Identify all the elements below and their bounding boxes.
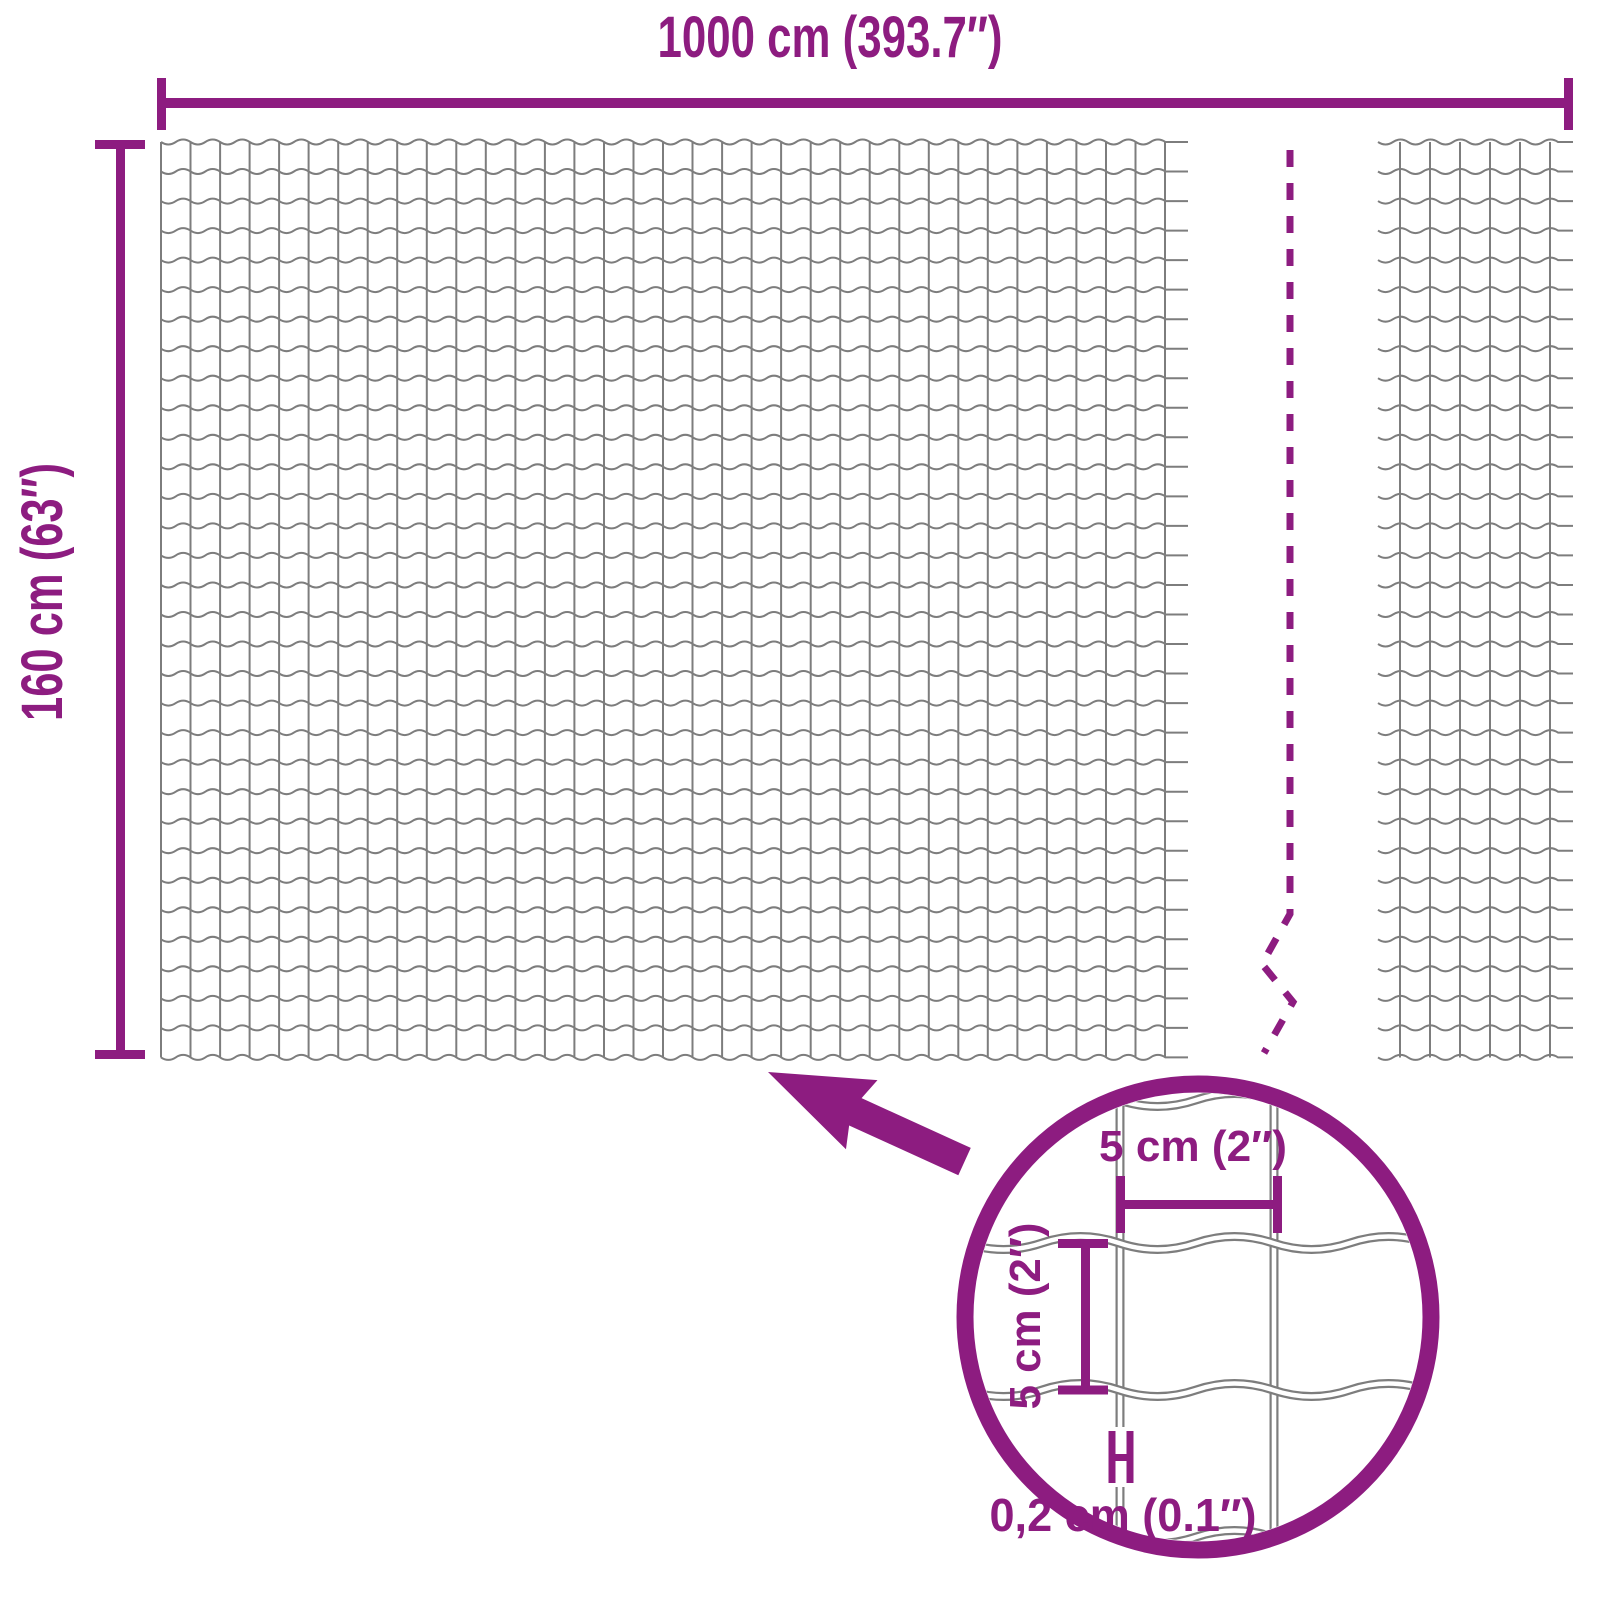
mesh-wire-horizontal — [1378, 701, 1573, 706]
mesh-wire-horizontal — [161, 996, 1188, 1001]
mesh-wire-horizontal — [1378, 317, 1573, 322]
mesh-wire-horizontal — [161, 464, 1188, 469]
mesh-wire-horizontal — [161, 494, 1188, 499]
mesh-break-dashed-line-icon — [1262, 150, 1293, 1053]
mesh-wire-horizontal — [161, 1025, 1188, 1030]
mesh-wire-horizontal — [161, 878, 1188, 883]
mesh-wire-horizontal — [161, 199, 1188, 204]
mesh-wire-horizontal — [161, 258, 1188, 263]
mesh-wire-horizontal — [161, 701, 1188, 706]
mesh-wire-horizontal — [161, 583, 1188, 588]
mesh-wire-horizontal — [161, 671, 1188, 676]
mesh-wire-horizontal — [1378, 287, 1573, 292]
mesh-wire-horizontal — [161, 228, 1188, 233]
mesh-wire-horizontal — [161, 317, 1188, 322]
mesh-wire-horizontal — [1378, 346, 1573, 351]
mesh-wire-horizontal — [161, 376, 1188, 381]
mesh-wire-horizontal — [161, 435, 1188, 440]
mesh-wire-horizontal — [1378, 1025, 1573, 1030]
width-dimension: 1000 cm (393.7″) — [159, 5, 1570, 130]
mesh-wire-horizontal — [161, 966, 1188, 971]
width-dimension-label: 1000 cm (393.7″) — [658, 5, 1003, 70]
mesh-wire-horizontal — [1378, 376, 1573, 381]
mesh-wire-horizontal — [161, 612, 1188, 617]
mesh-wire-horizontal — [1378, 435, 1573, 440]
diagram-canvas: 1000 cm (393.7″) 160 cm (63″) 5 cm (2″) … — [0, 0, 1600, 1600]
zoom-arrow-icon — [752, 1037, 980, 1196]
mesh-wire-horizontal — [1378, 258, 1573, 263]
mesh-wire-horizontal — [1378, 583, 1573, 588]
mesh-wire-horizontal — [161, 730, 1188, 735]
mesh-wire-horizontal — [161, 287, 1188, 292]
mesh-wire-horizontal — [161, 848, 1188, 853]
mesh-wire-horizontal — [1378, 140, 1573, 145]
mesh-wire-horizontal — [1378, 760, 1573, 765]
mesh-wire-horizontal — [161, 523, 1188, 528]
mesh-wire-horizontal — [1378, 612, 1573, 617]
mesh-wire-horizontal — [1378, 966, 1573, 971]
mesh-width-label: 5 cm (2″) — [1099, 1122, 1287, 1171]
mesh-wire-horizontal — [1378, 199, 1573, 204]
mesh-wire-horizontal — [1378, 996, 1573, 1001]
mesh-wire-horizontal — [1378, 494, 1573, 499]
mesh-wire-horizontal — [1378, 937, 1573, 942]
mesh-wire-horizontal — [1378, 730, 1573, 735]
mesh-wire-horizontal — [161, 760, 1188, 765]
mesh-wire-horizontal — [161, 789, 1188, 794]
height-dimension-label: 160 cm (63″) — [10, 463, 75, 721]
mesh-wire-horizontal — [1378, 848, 1573, 853]
mesh-wire-horizontal — [161, 553, 1188, 558]
mesh-wire-horizontal — [161, 819, 1188, 824]
mesh-wire-horizontal — [1378, 819, 1573, 824]
mesh-panel-continued — [1378, 140, 1573, 1060]
mesh-wire-horizontal — [161, 642, 1188, 647]
mesh-wire-horizontal — [1378, 642, 1573, 647]
mesh-height-label: 5 cm (2″) — [1001, 1223, 1050, 1410]
mesh-wire-horizontal — [1378, 1055, 1573, 1060]
mesh-wire-horizontal — [161, 907, 1188, 912]
mesh-wire-horizontal — [1378, 671, 1573, 676]
mesh-wire-horizontal — [1378, 228, 1573, 233]
mesh-wire-horizontal — [161, 169, 1188, 174]
mesh-wire-horizontal — [1378, 789, 1573, 794]
product-dimension-diagram: 1000 cm (393.7″) 160 cm (63″) 5 cm (2″) … — [0, 0, 1600, 1600]
mesh-wire-horizontal — [1378, 169, 1573, 174]
mesh-wire-horizontal — [161, 1055, 1188, 1060]
mesh-panel-main — [161, 140, 1188, 1060]
mesh-wire-horizontal — [1378, 405, 1573, 410]
mesh-wire-horizontal — [161, 140, 1188, 145]
mesh-wire-horizontal — [1378, 907, 1573, 912]
height-dimension: 160 cm (63″) — [10, 144, 145, 1055]
mesh-wire-horizontal — [1378, 523, 1573, 528]
mesh-wire-horizontal — [1378, 553, 1573, 558]
mesh-wire-horizontal — [161, 405, 1188, 410]
mesh-wire-horizontal — [161, 346, 1188, 351]
mesh-wire-horizontal — [1378, 878, 1573, 883]
wire-thickness-label: 0,2 cm (0.1″) — [990, 1489, 1257, 1541]
mesh-wire-horizontal — [161, 937, 1188, 942]
mesh-wire-horizontal — [1378, 464, 1573, 469]
